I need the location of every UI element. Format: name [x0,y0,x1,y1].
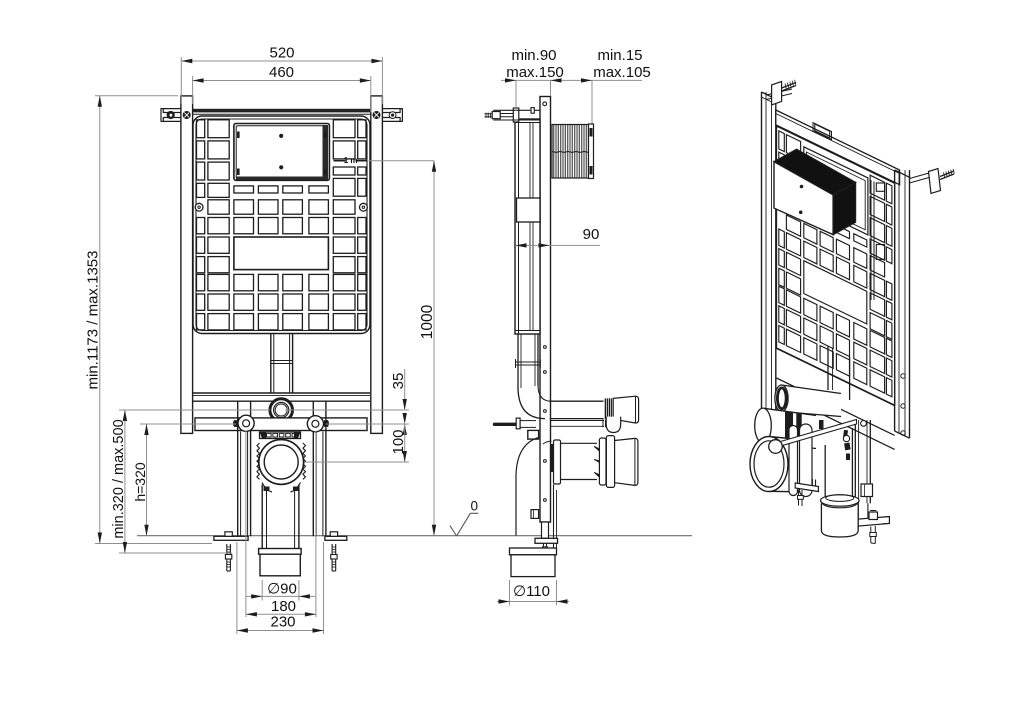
svg-text:∅90: ∅90 [267,581,297,598]
svg-text:h=320: h=320 [132,462,148,502]
svg-text:520: 520 [269,45,294,62]
svg-text:min.15: min.15 [597,47,642,64]
svg-text:100: 100 [390,429,407,454]
svg-text:max.150: max.150 [506,64,564,81]
svg-text:230: 230 [270,614,295,631]
svg-text:460: 460 [269,64,294,81]
svg-text:min.90: min.90 [511,47,556,64]
svg-text:35: 35 [390,373,407,390]
svg-text:1000: 1000 [419,304,436,339]
svg-text:180: 180 [271,598,296,615]
svg-text:0: 0 [470,499,478,514]
svg-text:min.320 / max.500: min.320 / max.500 [111,419,127,538]
svg-text:min.1173 / max.1353: min.1173 / max.1353 [85,251,102,390]
svg-text:max.105: max.105 [593,64,651,81]
svg-text:1 m: 1 m [344,156,358,165]
svg-text:90: 90 [583,226,600,243]
svg-text:∅110: ∅110 [513,583,550,600]
